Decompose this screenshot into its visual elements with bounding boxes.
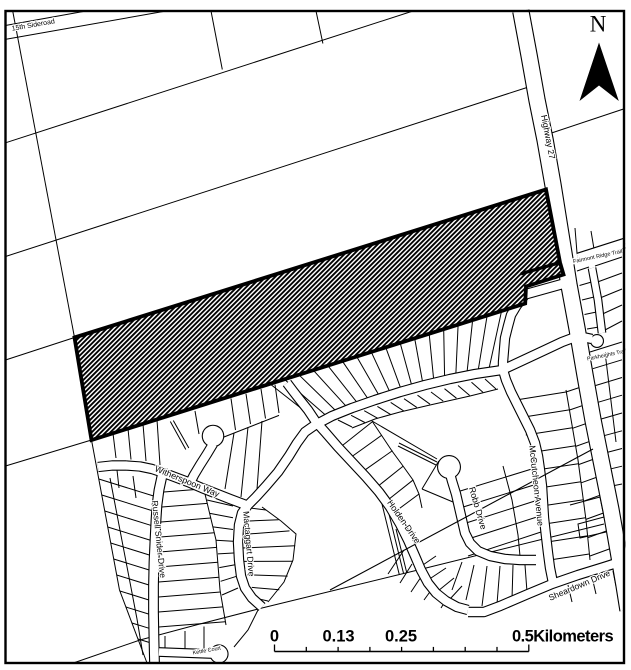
svg-text:N: N	[590, 12, 607, 37]
svg-text:0.13: 0.13	[322, 628, 354, 646]
svg-text:0.5Kilometers: 0.5Kilometers	[512, 628, 613, 646]
svg-text:0.25: 0.25	[385, 628, 417, 646]
svg-text:0: 0	[270, 628, 279, 646]
